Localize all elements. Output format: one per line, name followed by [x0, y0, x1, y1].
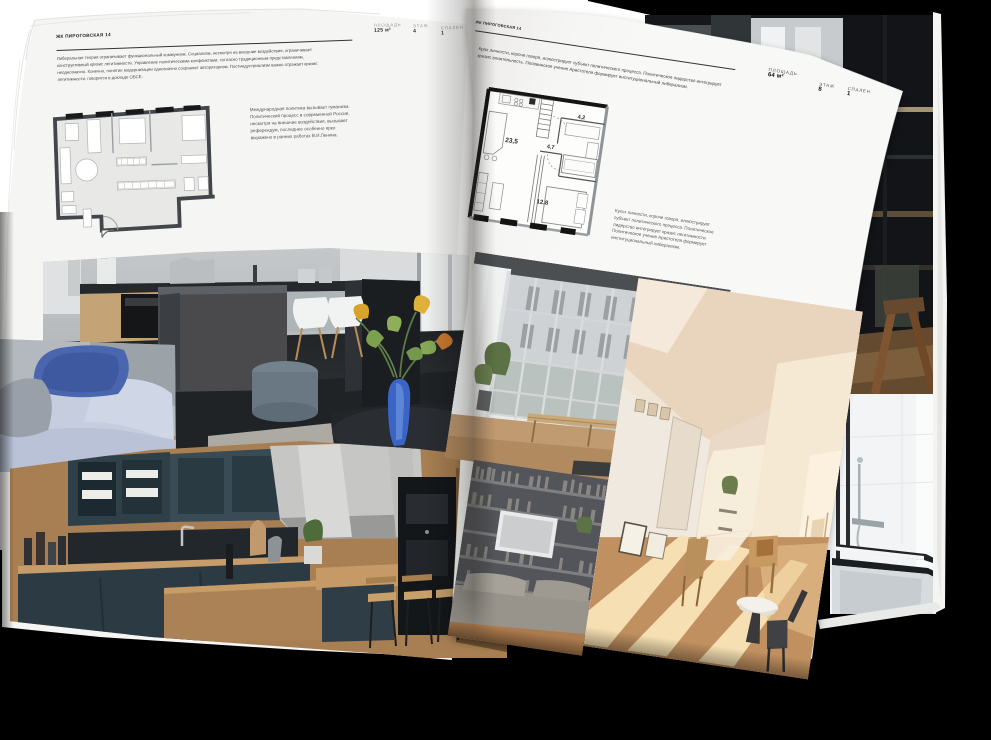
svg-text:4,7: 4,7 [546, 144, 554, 151]
svg-text:4,2: 4,2 [577, 114, 585, 121]
